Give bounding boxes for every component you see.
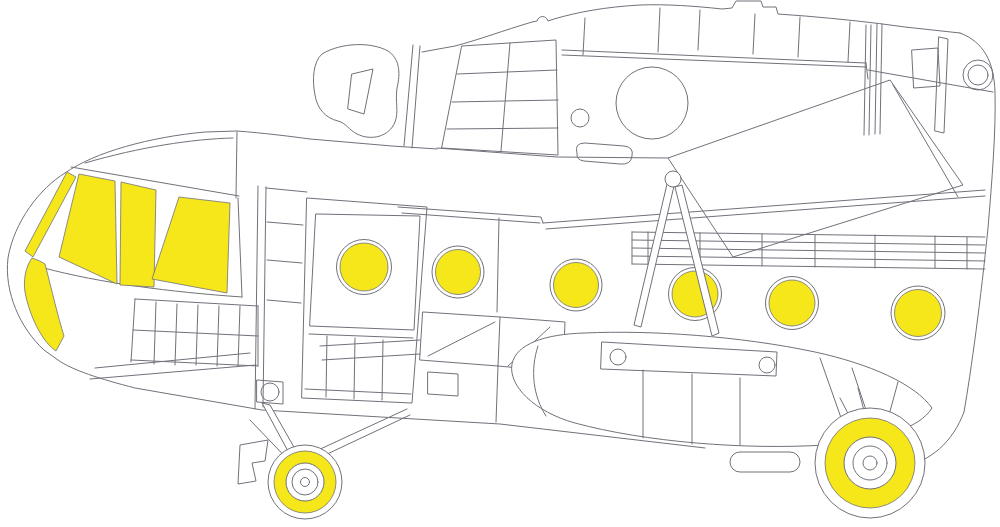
porthole-mask-disc	[895, 290, 942, 337]
spine-outline	[422, 1, 960, 52]
cockpit-lower-grid	[131, 299, 258, 366]
wheel-rim	[844, 437, 896, 489]
sliding-door	[302, 198, 427, 403]
engine-intake-circle	[616, 67, 688, 139]
exhaust-cowl-panel	[668, 80, 963, 257]
porthole-mask-disc	[340, 243, 388, 291]
boom-vertical-strip	[935, 37, 948, 133]
porthole-mask-disc	[554, 263, 599, 308]
belly-fairing	[730, 452, 800, 472]
windshield-panel-middle-mask	[120, 182, 156, 287]
porthole-mask-6	[891, 286, 945, 340]
porthole-mask-5	[766, 277, 819, 330]
porthole-mask-1	[337, 240, 392, 295]
main-wheel-mask	[815, 408, 925, 518]
deck-grid-panel	[442, 40, 558, 155]
porthole-mask-disc	[436, 250, 481, 295]
hoist-pivot	[665, 171, 681, 187]
cabin-bulkhead-lines	[255, 186, 307, 409]
helicopter-line-art	[0, 0, 1000, 527]
nose-gear-bracket	[238, 440, 268, 484]
cockpit-roofline	[65, 131, 437, 173]
deck-front-strip	[404, 45, 420, 148]
tail-circle-inner	[968, 65, 988, 85]
porthole-mask-2	[432, 246, 484, 298]
hoist-leg-front	[634, 184, 674, 327]
side-rack	[632, 232, 985, 269]
porthole-mask-3	[550, 259, 602, 311]
deck-small-circle	[571, 109, 589, 127]
roof-crease	[85, 138, 233, 163]
intake-fairing	[313, 45, 398, 138]
belly-crease-lines	[90, 353, 256, 379]
step-fairing	[576, 143, 632, 164]
nose-wheel-mask	[268, 445, 342, 519]
porthole-mask-disc	[769, 280, 815, 326]
windshield-right-frame	[236, 132, 242, 297]
cockpit-glazing-masks	[24, 172, 230, 351]
helicopter-masking-diagram	[0, 0, 1000, 527]
windshield-panel-right-mask	[152, 197, 230, 293]
